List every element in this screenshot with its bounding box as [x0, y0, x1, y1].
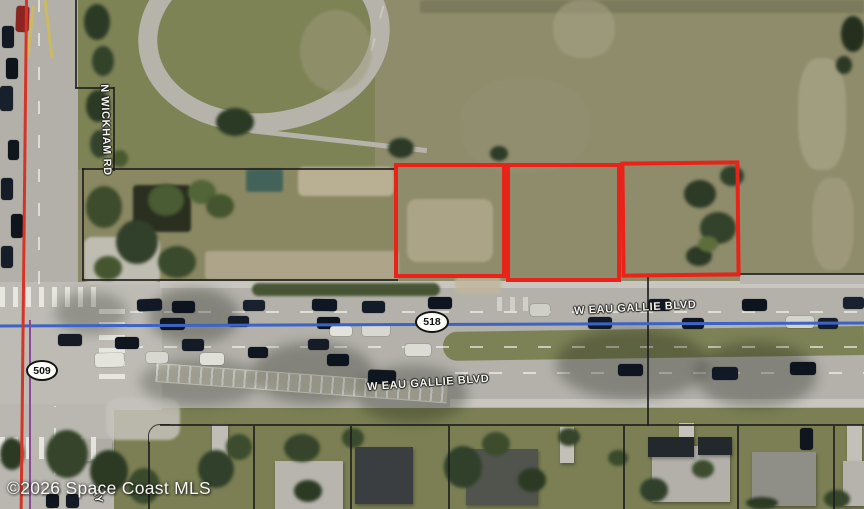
tree-shadow — [55, 292, 127, 334]
vehicle — [362, 301, 385, 313]
vehicle — [1, 178, 13, 200]
terrain-patch — [420, 0, 864, 13]
vehicle — [843, 297, 864, 309]
terrain-patch — [252, 283, 440, 296]
vehicle — [248, 347, 268, 358]
aerial-map[interactable]: 518 509 N WICKHAM RD W EAU GALLIE BLVD W… — [0, 0, 864, 509]
terrain-patch — [798, 58, 846, 170]
terrain-patch — [812, 178, 854, 270]
vehicle — [137, 299, 162, 312]
tree-canopy — [444, 446, 482, 488]
vehicle — [0, 86, 13, 111]
vehicle — [6, 58, 18, 79]
route-shield-509: 509 — [26, 360, 58, 381]
tree-canopy — [841, 16, 864, 52]
vehicle — [200, 353, 224, 365]
listing-parcel-outline-3[interactable] — [620, 160, 740, 277]
vehicle — [330, 326, 352, 336]
vehicle — [800, 428, 813, 450]
route-shield-509-text: 509 — [33, 365, 51, 377]
tree-canopy — [558, 428, 580, 446]
parcel-line — [160, 424, 864, 426]
terrain-patch — [460, 78, 590, 173]
tree-canopy — [284, 434, 320, 462]
tree-canopy — [490, 146, 508, 161]
vehicle — [172, 301, 195, 313]
tree-canopy — [482, 432, 510, 456]
tree-canopy — [158, 246, 196, 278]
tree-canopy — [746, 497, 778, 509]
parcel-line — [647, 277, 649, 426]
vehicle — [2, 26, 14, 48]
tree-canopy — [640, 478, 668, 502]
vehicle — [8, 140, 19, 160]
tree-shadow — [140, 358, 260, 406]
tree-shadow — [148, 288, 240, 344]
vehicle — [790, 362, 816, 375]
vehicle — [95, 353, 124, 368]
vehicle — [712, 367, 738, 380]
vehicle — [308, 339, 329, 350]
vehicle — [115, 337, 139, 349]
parcel-line — [82, 279, 398, 281]
tree-canopy — [94, 256, 122, 280]
tree-canopy — [86, 186, 122, 228]
vehicle — [742, 299, 767, 311]
vehicle — [428, 297, 452, 309]
vehicle — [327, 354, 349, 366]
tree-canopy — [216, 108, 254, 136]
parcel-line — [740, 273, 864, 275]
terrain-patch — [300, 10, 372, 92]
tree-canopy — [92, 46, 114, 76]
vehicle — [312, 299, 337, 311]
tree-canopy — [206, 194, 234, 218]
parcel-line — [82, 168, 84, 280]
parcel-line — [253, 426, 255, 509]
tree-canopy — [84, 4, 110, 40]
tree-canopy — [608, 450, 628, 466]
tree-canopy — [692, 460, 714, 478]
route-shield-518-text: 518 — [423, 316, 441, 328]
vehicle — [1, 246, 13, 268]
vehicle — [11, 214, 23, 238]
tree-canopy — [294, 480, 322, 502]
parcel-line — [737, 426, 739, 509]
vehicle — [243, 300, 265, 311]
vehicle — [182, 339, 204, 351]
vehicle — [58, 334, 82, 346]
vehicle — [146, 352, 168, 363]
listing-parcel-outline-1[interactable] — [394, 163, 506, 278]
tree-canopy — [46, 430, 88, 478]
terrain-patch — [205, 251, 399, 280]
tree-canopy — [518, 468, 546, 492]
parcel-line — [350, 426, 352, 509]
vehicle — [362, 324, 390, 336]
parcel-line — [82, 168, 398, 170]
vehicle — [405, 344, 431, 356]
parcel-line — [113, 87, 115, 171]
terrain-patch — [553, 0, 615, 58]
parcel-line — [623, 426, 625, 509]
tree-canopy — [388, 138, 414, 158]
tree-canopy — [824, 490, 850, 508]
parcel-line — [448, 426, 450, 509]
copyright-watermark: ©2026 Space Coast MLS — [7, 478, 211, 499]
terrain-patch — [246, 169, 283, 192]
vehicle — [530, 304, 550, 316]
terrain-patch — [455, 277, 501, 294]
route-shield-518: 518 — [415, 311, 449, 333]
tree-canopy — [226, 434, 252, 460]
vehicle — [618, 364, 643, 376]
listing-parcel-outline-2[interactable] — [506, 163, 621, 282]
parcel-line-corner — [148, 424, 170, 444]
tree-canopy — [836, 56, 852, 74]
parcel-line — [75, 0, 77, 88]
tree-canopy — [148, 184, 184, 216]
terrain-patch — [298, 167, 394, 196]
tree-canopy — [116, 220, 158, 264]
tree-canopy — [342, 428, 364, 448]
parcel-line — [833, 426, 835, 509]
